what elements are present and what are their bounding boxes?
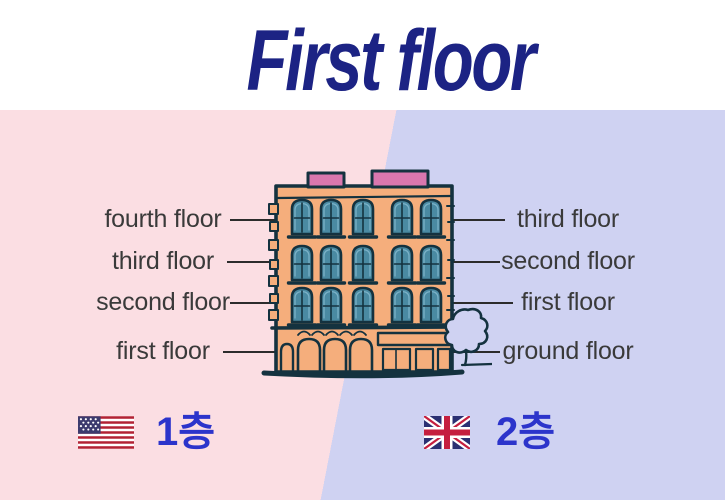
ground-line (462, 364, 492, 365)
uk-floor-number: 2층 (496, 410, 555, 454)
uk-flag-icon (424, 416, 470, 449)
us-flag-icon (78, 416, 134, 449)
building-windows (289, 200, 445, 325)
infographic-canvas: First floor fourth floor third floor sec… (0, 0, 725, 500)
us-floor-number: 1층 (156, 410, 215, 454)
title-area: First floor (0, 12, 725, 111)
uk-legend: 2층 (424, 410, 555, 454)
page-title: First floor (246, 12, 533, 111)
us-legend: 1층 (78, 410, 215, 454)
building-illustration (256, 152, 492, 384)
